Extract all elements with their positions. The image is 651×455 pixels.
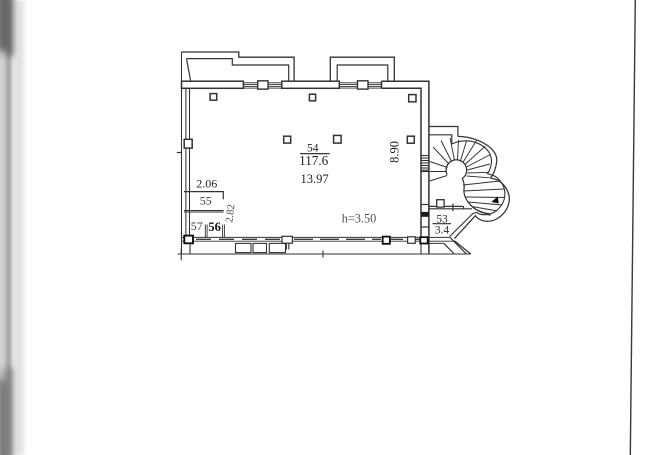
svg-text:h=3.50: h=3.50 (342, 212, 377, 226)
svg-text:2.06: 2.06 (196, 177, 217, 191)
svg-text:13.97: 13.97 (300, 172, 328, 186)
svg-text:56: 56 (208, 220, 221, 234)
svg-text:117.6: 117.6 (299, 153, 329, 168)
svg-text:57: 57 (191, 219, 203, 233)
svg-text:55: 55 (200, 193, 212, 207)
svg-text:2.82: 2.82 (224, 204, 237, 224)
svg-text:8.90: 8.90 (388, 141, 402, 163)
svg-text:3.4: 3.4 (435, 225, 450, 237)
